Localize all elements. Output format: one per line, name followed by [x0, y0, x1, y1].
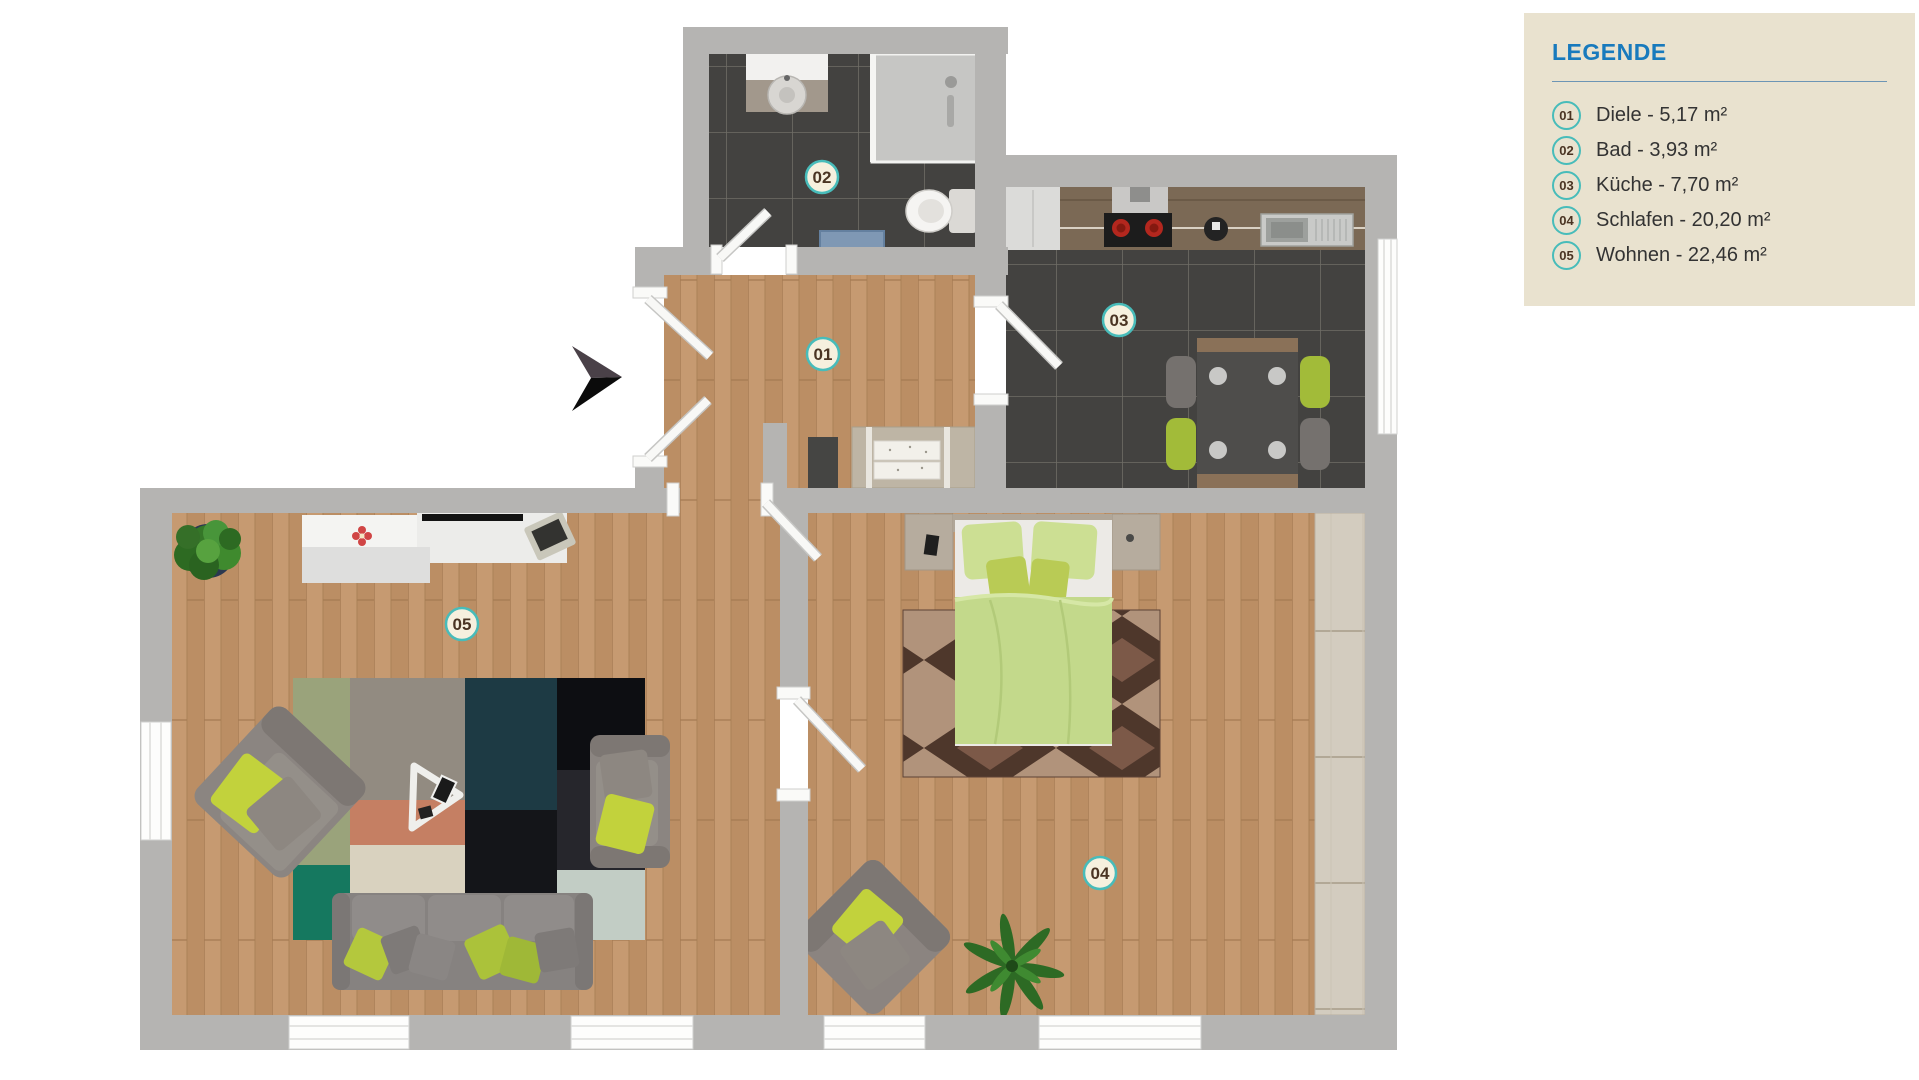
toilet	[906, 189, 977, 233]
window-living-bottom-2	[571, 1016, 693, 1049]
wall-bathroom-left	[683, 27, 709, 275]
legend-divider	[1552, 81, 1887, 82]
room-badge-wohnen: 05	[446, 608, 478, 640]
legend-item-kueche: 03 Küche - 7,70 m²	[1552, 171, 1887, 200]
legend-item-diele: 01 Diele - 5,17 m²	[1552, 101, 1887, 130]
window-bedroom-bottom-1	[824, 1016, 925, 1049]
legend-number-badge: 05	[1552, 241, 1581, 270]
sink-tap	[784, 75, 790, 81]
legend-item-label: Schlafen - 20,20 m²	[1596, 209, 1771, 232]
legend-item-label: Bad - 3,93 m²	[1596, 139, 1717, 162]
room-badge-kueche-number: 03	[1110, 311, 1129, 330]
legend-item-schlafen: 04 Schlafen - 20,20 m²	[1552, 206, 1887, 235]
legend-item-label: Diele - 5,17 m²	[1596, 104, 1727, 127]
legend-number-badge: 02	[1552, 136, 1581, 165]
entrance-arrow-icon	[572, 346, 622, 411]
nightstand-right	[1112, 514, 1160, 570]
dining-table	[1197, 338, 1298, 488]
hall-bench	[852, 427, 975, 488]
gray-pillow	[599, 749, 653, 803]
wall-living-top	[140, 488, 680, 513]
hallway-door-threshold	[680, 488, 763, 515]
chair-green	[1166, 418, 1196, 470]
duvet	[955, 597, 1112, 744]
room-badge-diele: 01	[807, 338, 839, 370]
legend-item-wohnen: 05 Wohnen - 22,46 m²	[1552, 241, 1887, 270]
window-kitchen-right	[1378, 239, 1397, 434]
wall-bedroom-top	[763, 488, 1397, 513]
bathroom-vanity	[746, 54, 828, 114]
legend-item-label: Küche - 7,70 m²	[1596, 174, 1738, 197]
wall-hall-left-upper	[635, 247, 664, 290]
rug-patch-teal	[465, 678, 557, 810]
wall-niche-stub	[763, 423, 787, 488]
bench-cushion	[874, 441, 940, 460]
gray-pillow	[534, 927, 580, 973]
shower-glass-door	[870, 54, 876, 162]
wall-divider-lower	[780, 789, 808, 1015]
tv	[422, 514, 523, 521]
chair-green	[1300, 356, 1330, 408]
armchair-right	[590, 735, 670, 868]
shower-head	[945, 76, 957, 88]
room-badge-kueche: 03	[1103, 304, 1135, 336]
room-badge-diele-number: 01	[814, 345, 833, 364]
legend-panel: LEGENDE 01 Diele - 5,17 m² 02 Bad - 3,93…	[1524, 13, 1915, 306]
legend-item-label: Wohnen - 22,46 m²	[1596, 244, 1767, 267]
kitchen-counter	[1006, 187, 1365, 250]
bench-cushion	[874, 462, 940, 479]
kitchen-sink	[1261, 214, 1353, 246]
phone	[924, 534, 940, 556]
wall-bathroom-top	[683, 27, 1008, 54]
wall-bathroom-bottom-right	[786, 247, 1008, 275]
chair-gray	[1166, 356, 1196, 408]
chair-gray	[1300, 418, 1330, 470]
window-living-left	[141, 722, 171, 840]
window-bedroom-bottom-2	[1039, 1016, 1201, 1049]
room-badge-bad: 02	[806, 161, 838, 193]
legend-number-badge: 04	[1552, 206, 1581, 235]
cooktop	[1104, 213, 1172, 247]
room-badge-schlafen: 04	[1084, 857, 1116, 889]
legend-item-bad: 02 Bad - 3,93 m²	[1552, 136, 1887, 165]
legend-title: LEGENDE	[1552, 39, 1887, 66]
room-badge-wohnen-number: 05	[453, 615, 472, 634]
window-living-bottom-1	[289, 1016, 409, 1049]
wall-kitchen-top	[975, 155, 1397, 187]
shower-rail	[947, 95, 954, 127]
doormat	[808, 437, 838, 488]
room-badge-bad-number: 02	[813, 168, 832, 187]
sofa	[332, 893, 593, 990]
room-badge-schlafen-number: 04	[1091, 864, 1110, 883]
legend-number-badge: 01	[1552, 101, 1581, 130]
legend-number-badge: 03	[1552, 171, 1581, 200]
floorplan-page: 01 02 03 04 05 LEGENDE 01 Diele - 5,17 m…	[0, 0, 1919, 1080]
shower	[870, 54, 977, 162]
wardrobe	[1315, 513, 1365, 1015]
